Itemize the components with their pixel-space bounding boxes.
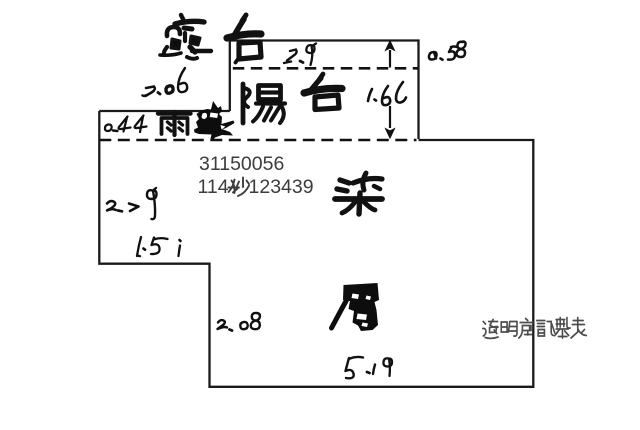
svg-text:31150056: 31150056: [199, 153, 284, 175]
svg-text:114: 114: [198, 176, 229, 198]
svg-text:123439: 123439: [249, 176, 314, 198]
